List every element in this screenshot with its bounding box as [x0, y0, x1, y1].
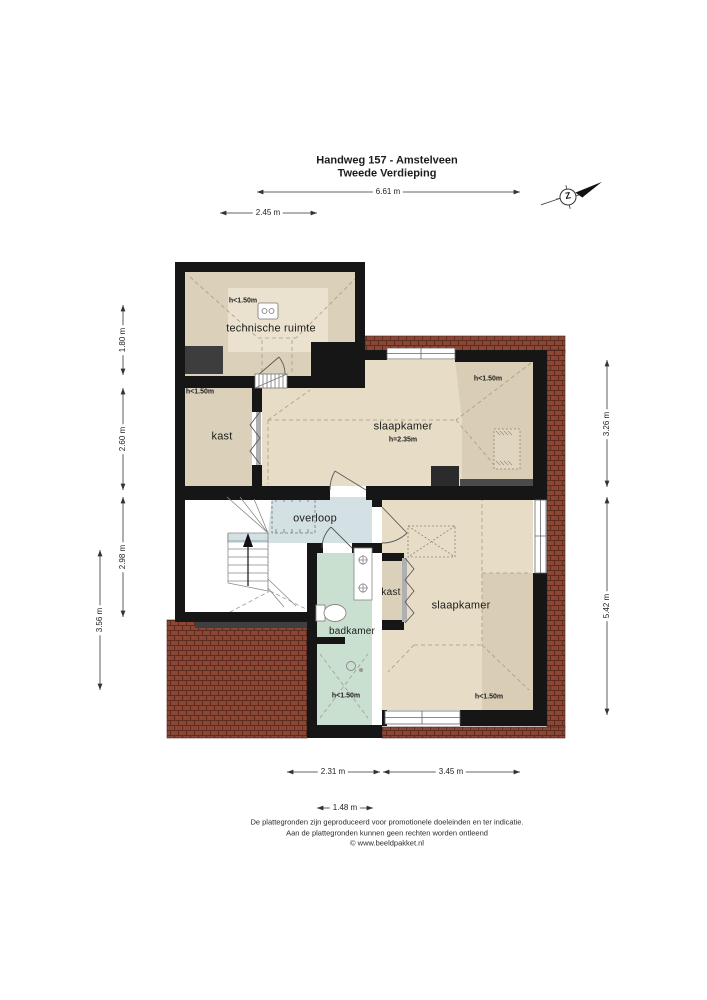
toilet-icon [316, 605, 346, 622]
page-title: Handweg 157 - Amstelveen [316, 156, 457, 167]
height-note-technische-ruimte: h<1.50m [229, 298, 257, 305]
copyright-line: © www.beeldpakket.nl [350, 839, 424, 847]
compass-icon [538, 179, 605, 214]
compass-south-label: Z [565, 191, 572, 201]
window-slaapkamer1-top [387, 348, 455, 359]
height-note-badkamer: h<1.50m [332, 693, 360, 700]
room-label-technische-ruimte: technische ruimte [226, 324, 316, 335]
height-note-slaapkamer1: h<1.50m [474, 376, 502, 383]
room-label-overloop: overloop [293, 514, 337, 525]
window-slaapkamer2-bottom [385, 711, 460, 724]
height-note-slaapkamer2: h<1.50m [475, 694, 503, 701]
dim-right-2: 5.42 m [603, 591, 611, 621]
dim-left-1: 1.80 m [119, 325, 127, 355]
dim-right-1: 3.26 m [603, 409, 611, 439]
skylight-slaapkamer1 [494, 429, 520, 469]
dim-top-secondary: 2.45 m [253, 209, 283, 217]
dim-top-width: 6.61 m [373, 188, 403, 196]
dim-left-2: 2.60 m [119, 424, 127, 454]
room-label-kast-onder: kast [381, 588, 400, 598]
floor-plan-drawing [0, 0, 707, 1000]
room-label-slaapkamer2: slaapkamer [432, 601, 491, 612]
page-subtitle: Tweede Verdieping [338, 169, 437, 180]
disclaimer-line2: Aan de plattegronden kunnen geen rechten… [286, 829, 488, 837]
dim-bottom-2: 3.45 m [436, 768, 466, 776]
washbasin-icon [354, 548, 372, 600]
loft-ladder-icon [255, 374, 287, 388]
room-label-badkamer: badkamer [329, 627, 375, 637]
window-slaapkamer2-right [535, 500, 546, 573]
dim-bottom-1: 2.31 m [318, 768, 348, 776]
boiler-icon [258, 303, 278, 319]
dim-left-outer: 3.56 m [96, 605, 104, 635]
floor-plan-page: Handweg 157 - Amstelveen Tweede Verdiepi… [0, 0, 707, 1000]
room-label-slaapkamer1: slaapkamer [374, 422, 433, 433]
dim-bottom-secondary: 1.48 m [330, 804, 360, 812]
ceiling-height-slaapkamer1: h=2.35m [389, 437, 417, 444]
height-note-kast-boven: h<1.50m [186, 389, 214, 396]
room-label-kast-boven: kast [212, 432, 233, 443]
dim-left-3: 2.98 m [119, 542, 127, 572]
disclaimer-line1: De plattegronden zijn geproduceerd voor … [250, 818, 523, 826]
